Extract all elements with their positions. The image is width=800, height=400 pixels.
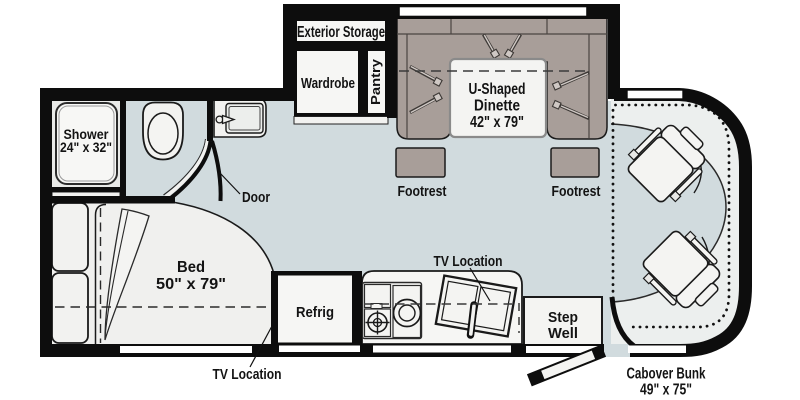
svg-text:Pantry: Pantry: [369, 59, 383, 105]
svg-text:Dinette: Dinette: [474, 98, 520, 115]
svg-text:Door: Door: [242, 190, 270, 206]
svg-text:49" x 75": 49" x 75": [640, 382, 692, 399]
svg-text:Footrest: Footrest: [552, 183, 601, 200]
svg-text:Step: Step: [548, 309, 578, 326]
svg-text:Cabover Bunk: Cabover Bunk: [627, 366, 706, 383]
svg-text:Well: Well: [548, 325, 578, 342]
svg-text:24" x 32": 24" x 32": [60, 140, 112, 155]
svg-text:Wardrobe: Wardrobe: [301, 75, 355, 92]
svg-text:Footrest: Footrest: [398, 183, 447, 200]
svg-text:Bed: Bed: [177, 259, 205, 276]
svg-text:TV Location: TV Location: [434, 253, 503, 270]
svg-text:Exterior Storage: Exterior Storage: [297, 24, 385, 41]
svg-text:U-Shaped: U-Shaped: [469, 81, 526, 98]
svg-text:50" x 79": 50" x 79": [156, 276, 226, 293]
svg-text:42" x 79": 42" x 79": [470, 114, 524, 131]
svg-text:TV Location: TV Location: [213, 366, 282, 383]
svg-text:Refrig: Refrig: [296, 304, 334, 321]
